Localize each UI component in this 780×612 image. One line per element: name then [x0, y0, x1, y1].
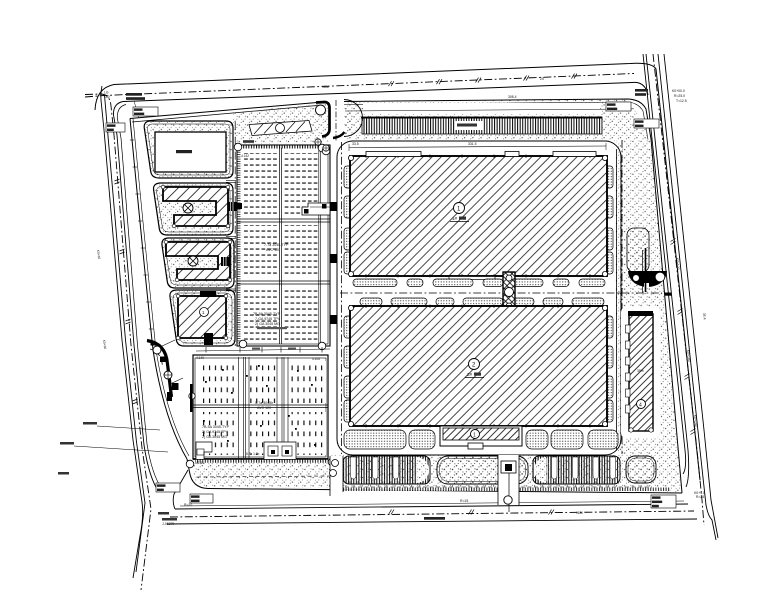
svg-text:18M: 18M	[322, 85, 329, 89]
svg-text:R=20: R=20	[184, 503, 192, 507]
svg-text:AVC 120: AVC 120	[257, 406, 271, 410]
svg-text:41.45: 41.45	[196, 461, 204, 465]
svg-text:4.140: 4.140	[196, 356, 204, 360]
svg-text:K0+60: K0+60	[96, 250, 101, 260]
svg-text:8.7b 1.0b: 8.7b 1.0b	[246, 452, 260, 456]
svg-text:K0+120: K0+120	[675, 258, 680, 270]
svg-text:35.4: 35.4	[702, 313, 707, 320]
svg-text:1: 1	[473, 433, 476, 439]
svg-text:1#: 1#	[452, 216, 458, 221]
svg-text:150: 150	[104, 95, 110, 99]
svg-text:7B-5A 3045-TYP: 7B-5A 3045-TYP	[253, 312, 281, 316]
svg-text:2) GA 3045 MG: 2) GA 3045 MG	[202, 435, 227, 439]
svg-text:331.5: 331.5	[468, 142, 477, 146]
svg-text:R=15: R=15	[460, 499, 468, 503]
svg-text:T=12.5: T=12.5	[676, 99, 687, 103]
svg-text:J-06379: J-06379	[162, 522, 174, 526]
svg-text:5-7a 3045h: 5-7a 3045h	[255, 401, 273, 405]
svg-text:AVC 120: AVC 120	[266, 248, 280, 252]
svg-text:K0+90: K0+90	[102, 340, 107, 350]
svg-text:2) GA 9745 TPV: 2) GA 9745 TPV	[202, 430, 229, 434]
svg-text:7B-5A 3045-TYP: 7B-5A 3045-TYP	[202, 425, 230, 429]
svg-text:2#: 2#	[467, 372, 473, 377]
svg-text:2) GA 3045 MG: 2) GA 3045 MG	[255, 322, 280, 326]
svg-text:35%: 35%	[637, 369, 644, 373]
svg-text:K0+00.0: K0+00.0	[672, 89, 685, 93]
svg-text:18M: 18M	[576, 511, 583, 515]
svg-text:R=25.0: R=25.0	[674, 94, 685, 98]
svg-text:24: 24	[618, 291, 622, 295]
svg-text:4.106: 4.106	[312, 357, 320, 361]
svg-text:4: 4	[639, 403, 642, 409]
svg-text:33.5: 33.5	[352, 142, 359, 146]
svg-text:308.4: 308.4	[508, 95, 517, 99]
svg-text:LG: LG	[104, 91, 109, 95]
svg-text:7-GA 9745 TPV: 7-GA 9745 TPV	[255, 317, 281, 321]
svg-text:20: 20	[540, 77, 544, 81]
svg-text:R=25: R=25	[696, 495, 704, 499]
svg-text:7-7a 3045-TYP: 7-7a 3045-TYP	[264, 243, 289, 247]
svg-text:4.142: 4.142	[241, 154, 249, 158]
